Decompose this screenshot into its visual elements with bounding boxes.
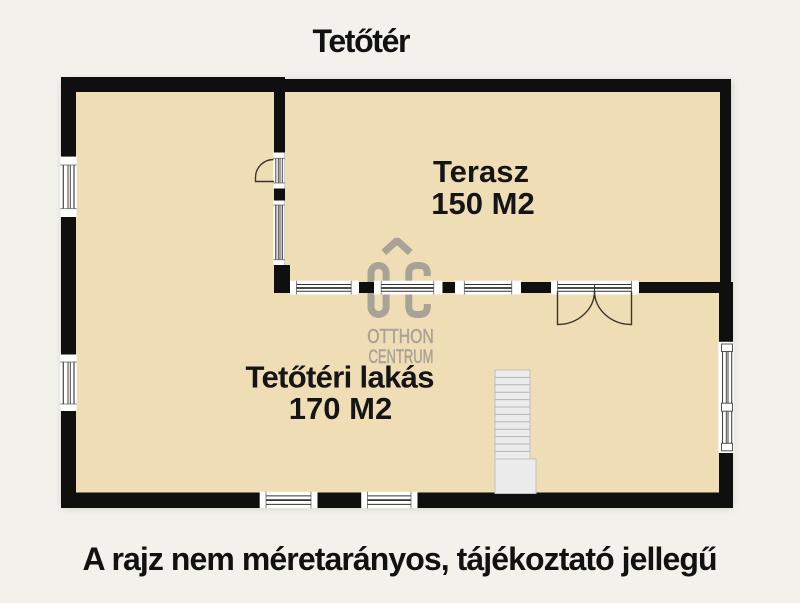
svg-text:150 M2: 150 M2 [431,186,534,221]
svg-text:170 M2: 170 M2 [289,391,392,426]
svg-text:Terasz: Terasz [433,154,529,189]
svg-text:Tetőtéri lakás: Tetőtéri lakás [246,360,435,395]
svg-text:OTTHON: OTTHON [367,325,434,348]
svg-text:Tetőtér: Tetőtér [313,23,411,59]
svg-text:A rajz nem méretarányos, tájék: A rajz nem méretarányos, tájékoztató jel… [83,541,718,577]
